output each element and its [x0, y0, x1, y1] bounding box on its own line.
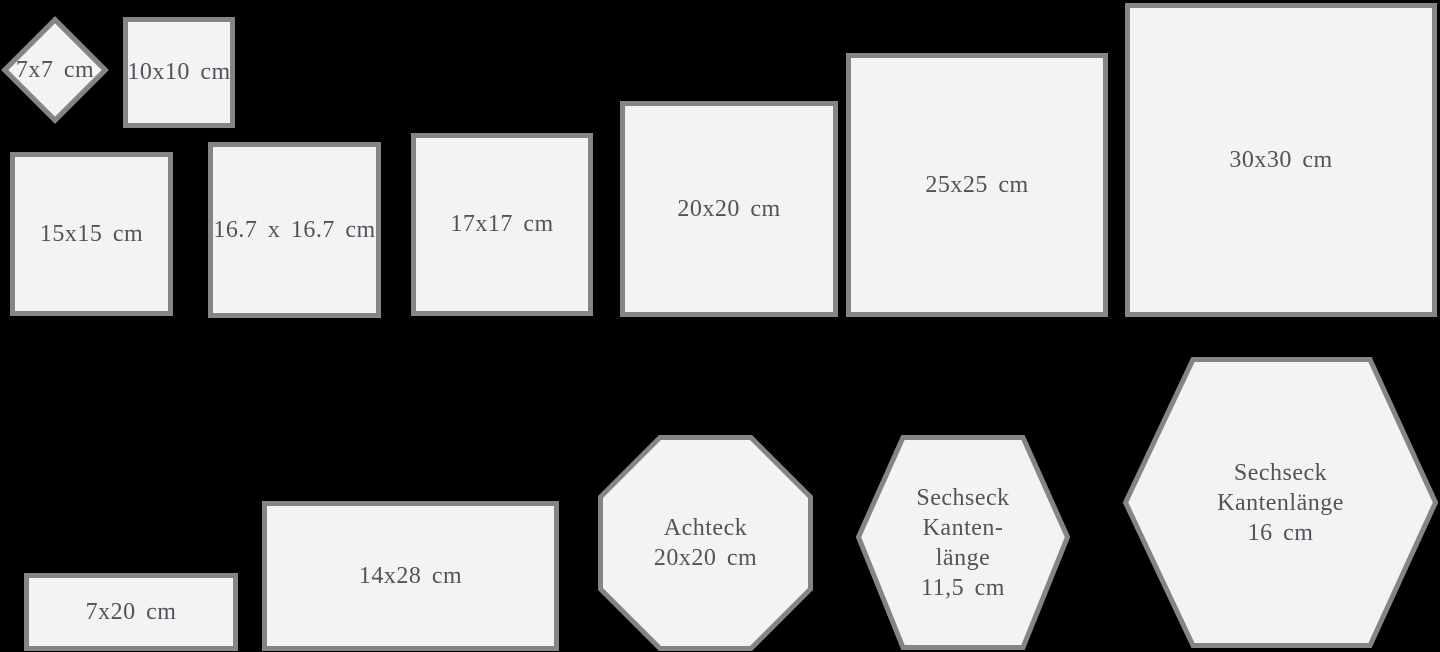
tile-label: 14x28 cm: [359, 563, 462, 590]
tile-label: 10x10 cm: [127, 59, 230, 86]
tile-label: Kantenlänge: [1217, 488, 1344, 518]
tile-square-25x25: 25x25 cm: [846, 53, 1108, 317]
tile-label: 16 cm: [1248, 518, 1314, 548]
tile-octagon-20x20: Achteck 20x20 cm: [598, 435, 813, 651]
tile-label: 11,5 cm: [921, 573, 1005, 603]
tile-diamond-7x7: 7x7 cm: [2, 15, 108, 125]
tile-label: 7x7 cm: [16, 57, 94, 84]
tile-label: 30x30 cm: [1229, 147, 1332, 174]
tile-label: länge: [936, 543, 990, 573]
tile-rect-14x28: 14x28 cm: [262, 501, 559, 651]
tile-square-10x10: 10x10 cm: [123, 17, 235, 128]
tile-label: 25x25 cm: [925, 172, 1028, 199]
tile-label: 20x20 cm: [654, 543, 757, 573]
tile-square-15x15: 15x15 cm: [10, 152, 173, 316]
tile-rect-7x20: 7x20 cm: [24, 573, 238, 651]
tile-hexagon-16: Sechseck Kantenlänge 16 cm: [1123, 357, 1438, 648]
tile-label: 7x20 cm: [86, 599, 177, 626]
tile-square-17x17: 17x17 cm: [411, 133, 593, 316]
tile-label: Sechseck: [916, 483, 1009, 513]
tile-label: 16.7 x 16.7 cm: [213, 217, 375, 244]
tile-label: 17x17 cm: [450, 211, 553, 238]
tile-label: Kanten-: [923, 513, 1004, 543]
tile-hexagon-11-5: Sechseck Kanten- länge 11,5 cm: [856, 435, 1070, 650]
tile-label: Achteck: [664, 513, 747, 543]
tile-label: Sechseck: [1234, 458, 1327, 488]
tile-square-16-7x16-7: 16.7 x 16.7 cm: [208, 142, 381, 318]
tile-size-diagram: 7x7 cm 10x10 cm 15x15 cm 16.7 x 16.7 cm …: [0, 0, 1440, 652]
tile-square-20x20: 20x20 cm: [620, 101, 838, 317]
tile-label: 20x20 cm: [677, 196, 780, 223]
tile-square-30x30: 30x30 cm: [1125, 3, 1437, 317]
tile-label: 15x15 cm: [40, 221, 143, 248]
